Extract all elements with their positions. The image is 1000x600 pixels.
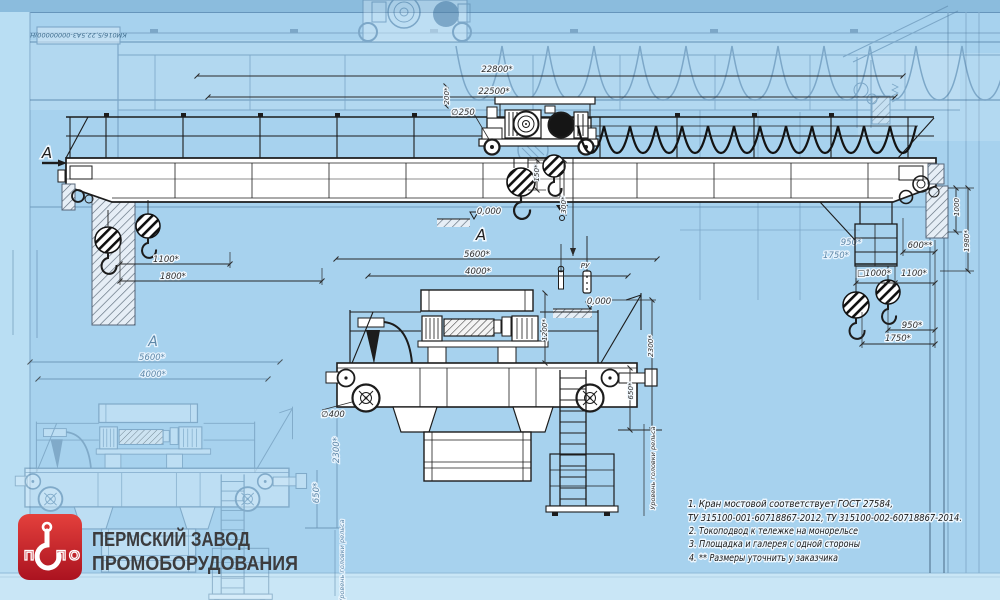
crane-drawing-svg: КМ016/5,22,5А3-00000000/Н А 5600* 4000* … bbox=[0, 0, 1000, 600]
ghost-dim-650: 650* bbox=[312, 483, 322, 503]
dim-base-5600: 5600* bbox=[464, 250, 490, 260]
pendant-label: РУ bbox=[581, 261, 590, 270]
dim-right-col-1000: 1000 bbox=[952, 197, 961, 216]
faded-dim-1750: 1750* bbox=[823, 251, 849, 261]
ghost-dim-2300: 2300* bbox=[332, 437, 342, 463]
dim-base-4000: 4000* bbox=[465, 267, 491, 277]
dim-right-hook-950: 950* bbox=[902, 321, 922, 331]
view-label: А bbox=[475, 226, 486, 244]
section-label: А bbox=[41, 144, 52, 162]
dim-right-height-1980: 1980* bbox=[962, 230, 971, 252]
faded-dim-950: 950* bbox=[841, 238, 861, 248]
ghost-view-label: А bbox=[147, 334, 158, 350]
dim-right-hook-1750: 1750* bbox=[885, 334, 911, 344]
dim-left-hook-1100: 1100* bbox=[153, 255, 179, 265]
dim-right-wall-600: 600** bbox=[908, 241, 933, 251]
dim-span-crane: 22500* bbox=[478, 87, 509, 97]
company-name-line2: ПРОМОБОРУДОВАНИЯ bbox=[92, 552, 298, 575]
note-1b: ТУ 315100-001-60718867-2012, ТУ 315100-0… bbox=[688, 513, 962, 524]
dim-platform-1000: □1000* bbox=[857, 269, 891, 279]
dim-bridge-2300: 2300* bbox=[646, 335, 655, 357]
ghost-rail-level-label: Уровень головки рельса bbox=[338, 519, 346, 600]
dim-hook-aux-h: 300* bbox=[559, 196, 568, 214]
dim-hook-main-h: 150* bbox=[532, 164, 541, 182]
logo-letter-p2: П bbox=[56, 547, 66, 563]
company-name-line1: ПЕРМСКИЙ ЗАВОД bbox=[92, 527, 250, 551]
logo-letter-o: О bbox=[69, 547, 80, 563]
note-2: 2. Токоподвод к тележке на монорельсе bbox=[689, 526, 858, 537]
note-3: 3. Площадка и галерея с одной стороны bbox=[689, 539, 860, 550]
dim-wheel-dia-400: ∅400 bbox=[321, 410, 345, 420]
dim-right-gap-1100: 1100* bbox=[901, 269, 927, 279]
rail-level-label: Уровень головки рельса bbox=[649, 426, 657, 509]
drawing-sheet: КМ016/5,22,5А3-00000000/Н А 5600* 4000* … bbox=[0, 0, 1000, 600]
dim-trolley-wheel-dia: ∅250 bbox=[451, 108, 475, 118]
dim-span-building: 22800* bbox=[481, 65, 512, 75]
dim-girder-650: 650* bbox=[626, 382, 635, 400]
title-block-designation: КМ016/5,22,5А3-00000000/Н bbox=[30, 31, 127, 39]
dim-hoist-1200: 1200* bbox=[540, 319, 549, 341]
logo-letter-p1: П bbox=[24, 547, 34, 563]
note-1: 1. Кран мостовой соответствует ГОСТ 2758… bbox=[688, 499, 893, 510]
ghost-dim-4000: 4000* bbox=[140, 370, 166, 380]
zero-level-main: 0,000 bbox=[477, 207, 501, 217]
zero-level-end: 0,000 bbox=[587, 297, 611, 307]
dim-top-gap: 200* bbox=[442, 87, 451, 105]
dim-left-hook-1800: 1800* bbox=[160, 272, 186, 282]
note-4: 4. ** Размеры уточнить у заказчика bbox=[689, 553, 838, 564]
ghost-dim-5600: 5600* bbox=[139, 353, 165, 363]
